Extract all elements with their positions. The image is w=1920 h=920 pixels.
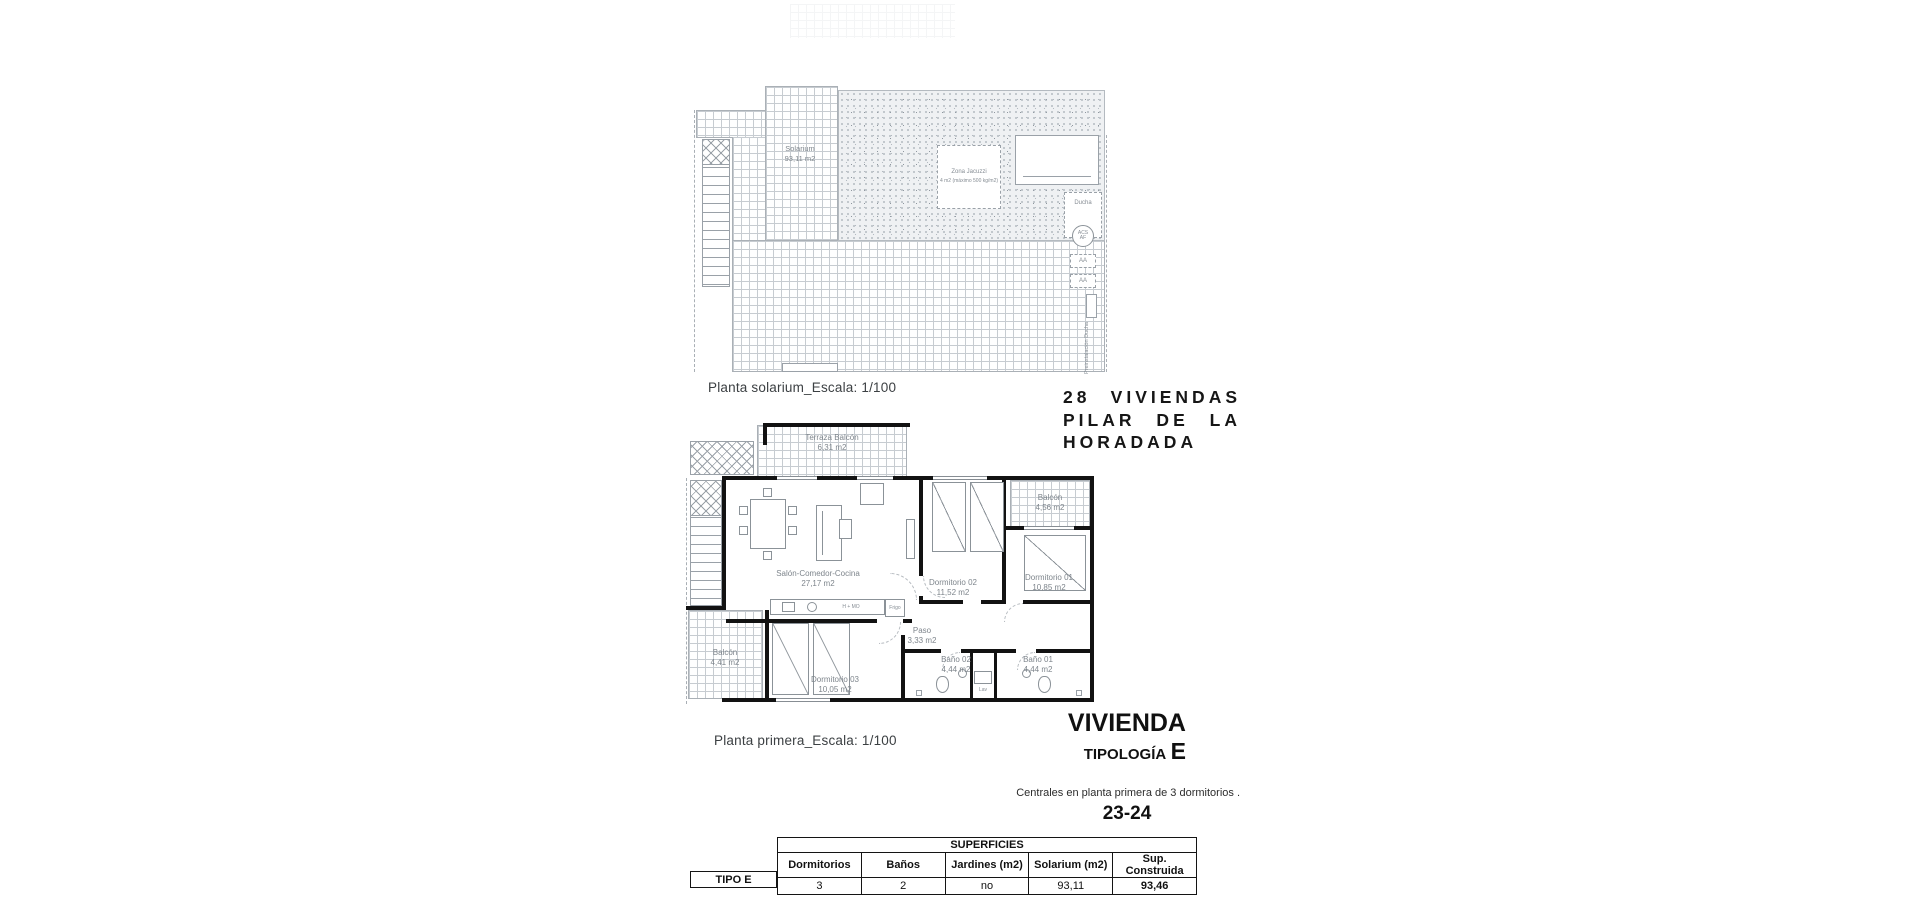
shower-preinstall-label: Preinstalación Ducha: [1084, 322, 1090, 374]
floor-plan-caption: Planta primera_Escala: 1/100: [714, 733, 897, 748]
door-arc: [890, 573, 917, 600]
dining-table: [750, 499, 786, 549]
table-value-row: 3 2 no 93,11 93,46: [778, 878, 1197, 895]
vent-marker: [916, 690, 922, 696]
wall: [1090, 530, 1094, 702]
window: [777, 476, 817, 480]
table-group-header-row: SUPERFICIES: [778, 838, 1197, 853]
ducha-label: Ducha: [1066, 200, 1100, 207]
project-title-line1: 28 VIVIENDAS: [1063, 386, 1241, 409]
room-label-balcon-tr: Balcón 4,56 m2: [1016, 493, 1084, 512]
window: [776, 698, 830, 702]
wall: [1006, 476, 1094, 480]
chair: [763, 551, 772, 560]
coffee-table: [839, 519, 852, 539]
armchair: [860, 483, 884, 505]
room-label-dormitorio03: Dormitorio 03 10,05 m2: [804, 675, 866, 694]
room-label-dormitorio01: Dormitorio 01 10,85 m2: [1010, 573, 1088, 592]
wall: [1036, 649, 1090, 653]
toilet: [1038, 676, 1051, 693]
room-label-salon: Salón-Comedor-Cocina 27,17 m2: [770, 569, 866, 588]
window: [1024, 526, 1074, 530]
chair: [739, 526, 748, 535]
table-row-label: TIPO E: [690, 871, 777, 888]
chair: [788, 526, 797, 535]
vent-marker: [1076, 690, 1082, 696]
wall: [903, 619, 912, 623]
wall: [763, 423, 767, 445]
table-header-row: Dormitorios Baños Jardines (m2) Solarium…: [778, 853, 1197, 878]
bed: [932, 482, 966, 552]
chair: [788, 506, 797, 515]
roof-opening-line: [1023, 176, 1091, 177]
neighbor-roof-hatch: [690, 441, 754, 475]
af-label: AF: [1080, 236, 1086, 242]
toilet: [936, 676, 949, 693]
roof-opening: [1015, 135, 1099, 185]
room-label-dormitorio02: Dormitorio 02 11,52 m2: [918, 578, 988, 597]
value-jardines: no: [945, 878, 1029, 895]
value-banos: 2: [861, 878, 945, 895]
col-header-solarium: Solarium (m2): [1029, 853, 1113, 878]
unit-type-letter: E: [1171, 738, 1186, 764]
service-fixture: [1086, 294, 1097, 318]
jacuzzi-zone-spec: 4 m2 (máximo 500 kg/m2): [940, 178, 998, 185]
table-group-header: SUPERFICIES: [778, 838, 1197, 853]
kitchen-sink: [807, 602, 817, 612]
cropped-plan-fragment: [790, 4, 955, 38]
room-label-paso: Paso 3,33 m2: [898, 626, 946, 645]
chair: [739, 506, 748, 515]
wall: [994, 653, 997, 698]
col-header-jardines: Jardines (m2): [945, 853, 1029, 878]
wall: [765, 610, 769, 698]
plot-boundary-line: [694, 110, 695, 372]
value-solarium: 93,11: [1029, 878, 1113, 895]
value-sup-construida: 93,46: [1113, 878, 1197, 895]
plot-boundary-line: [1106, 135, 1107, 372]
roof-access-hatch: [782, 363, 838, 372]
window: [857, 476, 893, 480]
fridge: Frigo: [885, 599, 905, 617]
plot-boundary-line: [686, 478, 687, 704]
wall: [763, 423, 910, 427]
room-label-bano02: Baño 02 4,44 m2: [931, 655, 981, 674]
unit-title-block: VIVIENDA TIPOLOGÍA E: [1020, 710, 1186, 765]
staircase-landing: [702, 139, 730, 165]
wall: [923, 600, 963, 604]
first-floor-plan: H + MO Frigo Lav Terraza Balcón 6,31 m2 …: [686, 423, 1112, 755]
jacuzzi-zone-label: Zona Jacuzzi: [951, 169, 986, 176]
unit-type-label: TIPOLOGÍA: [1084, 746, 1167, 763]
room-label-solarium: Solarium 93,11 m2: [750, 144, 850, 163]
solarium-tile-left: [765, 86, 838, 241]
window: [933, 476, 987, 480]
wall: [905, 649, 941, 653]
unit-heading: VIVIENDA: [1020, 710, 1186, 736]
laundry-label: Lav: [974, 687, 992, 694]
surfaces-table: SUPERFICIES Dormitorios Baños Jardines (…: [777, 837, 1197, 895]
solarium-caption: Planta solarium_Escala: 1/100: [708, 380, 896, 395]
wall: [686, 606, 726, 610]
jacuzzi-zone: Zona Jacuzzi 4 m2 (máximo 500 kg/m2): [937, 145, 1001, 209]
value-dormitorios: 3: [778, 878, 862, 895]
bed: [970, 482, 1004, 552]
aa-unit-2: AA: [1070, 274, 1096, 288]
wall: [981, 600, 1002, 604]
tv-unit: [906, 519, 915, 559]
hob: [782, 602, 795, 612]
col-header-sup-construida: Sup. Construida: [1113, 853, 1197, 878]
hob-oven-label: H + MO: [836, 604, 866, 611]
solarium-tile-main: [732, 240, 1105, 372]
water-supply-symbol: ACS AF: [1072, 225, 1094, 247]
wall: [919, 480, 923, 576]
chair: [763, 488, 772, 497]
door-arc: [1004, 603, 1023, 622]
unit-description: Centrales en planta primera de 3 dormito…: [1000, 787, 1240, 799]
room-label-bano01: Baño 01 4,44 m2: [1013, 655, 1063, 674]
wall: [1023, 600, 1090, 604]
room-label-balcon-bl: Balcón 4,41 m2: [694, 648, 756, 667]
col-header-banos: Baños: [861, 853, 945, 878]
staircase-void: [690, 480, 722, 516]
unit-numbers: 23-24: [1095, 803, 1159, 825]
sofa-cushion-line: [822, 511, 836, 555]
wall: [722, 476, 726, 608]
room-label-terraza: Terraza Balcón 6,31 m2: [786, 433, 878, 452]
aa-unit-1: AA: [1070, 254, 1096, 268]
col-header-dormitorios: Dormitorios: [778, 853, 862, 878]
drawing-sheet: Zona Jacuzzi 4 m2 (máximo 500 kg/m2) Sol…: [0, 0, 1920, 920]
solarium-plan: Zona Jacuzzi 4 m2 (máximo 500 kg/m2) Sol…: [688, 82, 1112, 404]
